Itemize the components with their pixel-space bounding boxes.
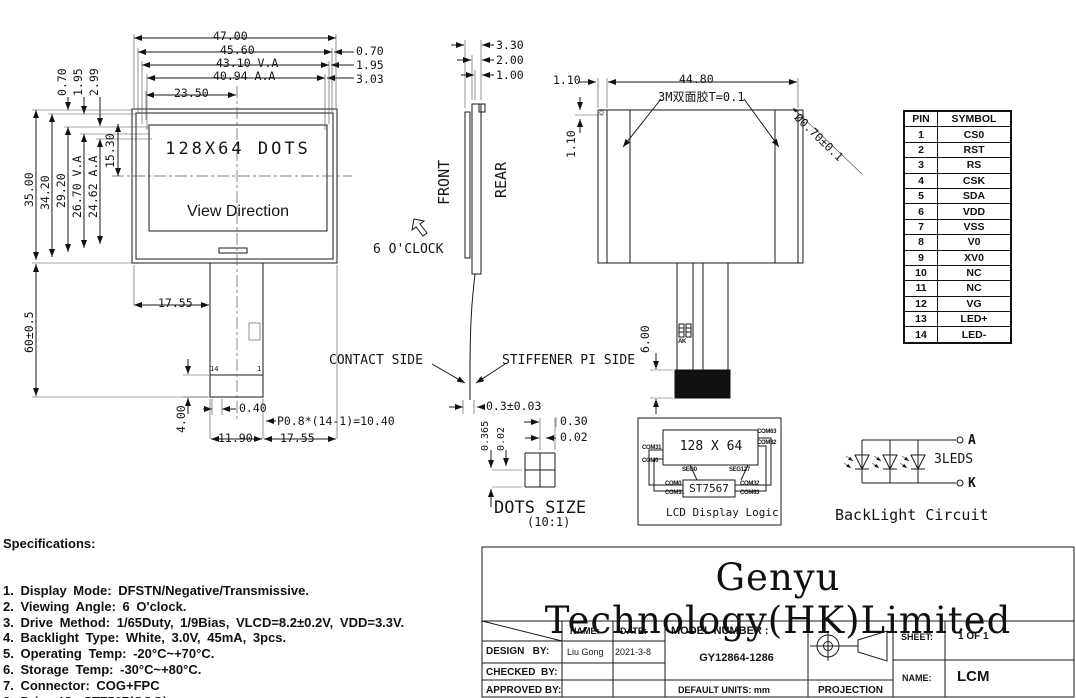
pin-table-row: 9XV0 bbox=[904, 250, 1011, 265]
dim-center-offset: 23.50 bbox=[174, 88, 209, 100]
dim-topleft-3: 2.99 bbox=[89, 68, 101, 96]
pin-table-row: 4CSK bbox=[904, 173, 1011, 188]
dim-topleft-1: 0.70 bbox=[57, 68, 69, 96]
logic-com-tl: COM31 bbox=[642, 445, 661, 451]
pin-table-row: 10NC bbox=[904, 265, 1011, 280]
logic-seg-left: SEG0 bbox=[682, 467, 697, 473]
logic-chip-l2: COM31 bbox=[665, 490, 684, 496]
tb-sheet-label: SHEET: bbox=[901, 632, 933, 642]
spec-item: 8. Drive IC: ST7567(COG) bbox=[3, 694, 404, 698]
led-icon bbox=[900, 455, 925, 469]
pin-symbol-cell: XV0 bbox=[938, 250, 1012, 265]
pin-symbol-cell: VDD bbox=[938, 204, 1012, 219]
dim-total-height: 60±0.5 bbox=[24, 311, 36, 353]
logic-chip-r1: COM32 bbox=[740, 481, 759, 487]
pin-symbol-cell: NC bbox=[938, 281, 1012, 296]
pin-number-cell: 12 bbox=[904, 296, 938, 311]
tb-design-label: DESIGN BY: bbox=[486, 646, 549, 657]
symbol-col-header: SYMBOL bbox=[938, 111, 1012, 127]
pin-symbol-cell: CSK bbox=[938, 173, 1012, 188]
specifications-title: Specifications: bbox=[3, 536, 404, 552]
backlight-anode-label: A bbox=[968, 434, 976, 447]
tb-projection-label: PROJECTION bbox=[818, 685, 883, 696]
dim-fpc-thickness: 0.3±0.03 bbox=[486, 401, 541, 413]
viewing-angle-label: 6 O'CLOCK bbox=[373, 243, 443, 256]
pin-table-row: 6VDD bbox=[904, 204, 1011, 219]
pin-number-cell: 8 bbox=[904, 235, 938, 250]
tb-date-label: DATE: bbox=[620, 626, 647, 636]
tb-design-date: 2021-3-8 bbox=[615, 647, 651, 657]
tape-note: 3M双面胶T=0.1 bbox=[658, 91, 745, 103]
dim-right-2: 1.95 bbox=[356, 60, 384, 72]
spec-item: 7. Connector: COG+FPC bbox=[3, 678, 404, 694]
tb-name-label: NAME: bbox=[570, 626, 600, 636]
pin-number-cell: 4 bbox=[904, 173, 938, 188]
logic-chip-text: ST7567 bbox=[684, 483, 734, 494]
dim-width-frame: 45.60 bbox=[220, 45, 255, 57]
pin-symbol-cell: CS0 bbox=[938, 127, 1012, 142]
tb-model-number: GY12864-1286 bbox=[665, 652, 808, 664]
dim-height-center: 15.30 bbox=[105, 133, 117, 168]
dim-height-va: 26.70 V.A bbox=[72, 156, 84, 218]
tb-model-label: MODEL NUMBER : bbox=[671, 625, 769, 637]
pin-table-row: 8V0 bbox=[904, 235, 1011, 250]
pin-table-row: 11NC bbox=[904, 281, 1011, 296]
dim-right-1: 0.70 bbox=[356, 46, 384, 58]
tb-name2-label: NAME: bbox=[902, 673, 932, 683]
pin-table-row: 14LED- bbox=[904, 327, 1011, 343]
six-oclock-arrow-icon bbox=[412, 219, 427, 236]
dim-topleft-2: 1.95 bbox=[73, 68, 85, 96]
spec-item: 2. Viewing Angle: 6 O'clock. bbox=[3, 599, 404, 615]
pin-table-body: 1CS02RST3RS4CSK5SDA6VDD7VSS8V09XV010NC11… bbox=[904, 127, 1011, 343]
dim-rear-gap-v: 1.10 bbox=[566, 130, 578, 158]
pin-symbol-cell: VG bbox=[938, 296, 1012, 311]
dim-connector-height: 4.00 bbox=[176, 405, 188, 433]
logic-com-tr: COM63 bbox=[757, 429, 776, 435]
pin-col-header: PIN bbox=[904, 111, 938, 127]
dim-side-1: 3.30 bbox=[496, 40, 524, 52]
backlight-caption: BackLight Circuit bbox=[835, 508, 989, 523]
pin-1-mark: 1 bbox=[257, 366, 261, 373]
side-view-linework bbox=[412, 40, 505, 414]
display-dots-text: 128X64 DOTS bbox=[163, 141, 313, 158]
pin-number-cell: 2 bbox=[904, 142, 938, 157]
dim-pitch: P0.8*(14-1)=10.40 bbox=[277, 416, 395, 428]
spec-list: 1. Display Mode: DFSTN/Negative/Transmis… bbox=[3, 583, 404, 698]
dim-connector-width: 11.90 bbox=[218, 433, 253, 445]
logic-com-br: COM32 bbox=[757, 440, 776, 446]
led-icon bbox=[872, 455, 897, 469]
pin-symbol-cell: NC bbox=[938, 265, 1012, 280]
logic-seg-right: SEG127 bbox=[729, 467, 750, 473]
logic-com-bl: COM0 bbox=[642, 458, 658, 464]
pin-number-cell: 9 bbox=[904, 250, 938, 265]
pin-table-row: 13LED+ bbox=[904, 312, 1011, 327]
tb-checked-label: CHECKED BY: bbox=[486, 667, 557, 678]
dim-width-aa: 40.94 A.A bbox=[213, 71, 275, 83]
spec-item: 4. Backlight Type: White, 3.0V, 45mA, 3p… bbox=[3, 630, 404, 646]
led-icon bbox=[844, 455, 869, 469]
pin-symbol-cell: V0 bbox=[938, 235, 1012, 250]
dim-width-outer: 47.00 bbox=[213, 31, 248, 43]
pin-symbol-cell: LED- bbox=[938, 327, 1012, 343]
contact-side-label: CONTACT SIDE bbox=[329, 354, 423, 367]
dim-height-3: 29.20 bbox=[56, 173, 68, 208]
pin-number-cell: 6 bbox=[904, 204, 938, 219]
dim-pin-width: 0.40 bbox=[239, 403, 267, 415]
logic-caption: LCD Display Logic bbox=[666, 507, 779, 518]
pin-symbol-cell: RST bbox=[938, 142, 1012, 157]
label-rear: REAR bbox=[494, 162, 509, 198]
pin-table-row: 2RST bbox=[904, 142, 1011, 157]
logic-chip-l1: COM0 bbox=[665, 481, 681, 487]
pin-number-cell: 1 bbox=[904, 127, 938, 142]
dim-side-3: 1.00 bbox=[496, 70, 524, 82]
dim-rear-gap-h: 1.10 bbox=[553, 75, 581, 87]
stiffener-side-label: STIFFENER PI SIDE bbox=[502, 354, 635, 367]
tb-units-label: DEFAULT UNITS: mm bbox=[678, 685, 770, 695]
lcd-module-datasheet-drawing: 47.00 45.60 43.10 V.A 40.94 A.A 23.50 0.… bbox=[0, 0, 1076, 698]
pin-number-cell: 3 bbox=[904, 158, 938, 173]
pin-number-cell: 5 bbox=[904, 188, 938, 203]
dim-height-frame: 34.20 bbox=[40, 175, 52, 210]
pin-table-header-row: PIN SYMBOL bbox=[904, 111, 1011, 127]
pin-number-cell: 7 bbox=[904, 219, 938, 234]
pin-number-cell: 11 bbox=[904, 281, 938, 296]
pin-table: PIN SYMBOL 1CS02RST3RS4CSK5SDA6VDD7VSS8V… bbox=[903, 110, 1012, 344]
dim-dot-width: 0.30 bbox=[560, 416, 588, 428]
dim-height-outer: 35.00 bbox=[24, 172, 36, 207]
pin-symbol-cell: SDA bbox=[938, 188, 1012, 203]
dim-tail-offset: 17.55 bbox=[158, 298, 193, 310]
dim-tail-right: 17.55 bbox=[280, 433, 315, 445]
pin-symbol-cell: VSS bbox=[938, 219, 1012, 234]
backlight-cathode-label: K bbox=[968, 477, 976, 490]
pin-number-cell: 10 bbox=[904, 265, 938, 280]
label-front: FRONT bbox=[437, 160, 452, 205]
pin-number-cell: 13 bbox=[904, 312, 938, 327]
pin-symbol-cell: LED+ bbox=[938, 312, 1012, 327]
tb-design-name: Liu Gong bbox=[567, 647, 604, 657]
ak-pad-label: AK bbox=[678, 339, 686, 345]
pin-symbol-cell: RS bbox=[938, 158, 1012, 173]
dim-dot-gap-h: 0.02 bbox=[497, 427, 507, 451]
tb-name-value: LCM bbox=[957, 668, 990, 685]
dim-tape-width: 44.80 bbox=[679, 74, 714, 86]
backlight-leds-label: 3LEDS bbox=[934, 453, 973, 466]
pin-14-mark: 14 bbox=[210, 366, 218, 373]
dim-dot-height: 0.365 bbox=[481, 421, 491, 451]
pin-number-cell: 14 bbox=[904, 327, 938, 343]
view-direction-text: View Direction bbox=[167, 204, 309, 220]
logic-display-text: 128 X 64 bbox=[665, 440, 757, 453]
spec-item: 3. Drive Method: 1/65Duty, 1/9Bias, VLCD… bbox=[3, 615, 404, 631]
spec-item: 6. Storage Temp: -30°C~+80°C. bbox=[3, 662, 404, 678]
spec-item: 5. Operating Temp: -20°C~+70°C. bbox=[3, 646, 404, 662]
specifications-block: Specifications: 1. Display Mode: DFSTN/N… bbox=[3, 504, 404, 698]
pin-table-row: 3RS bbox=[904, 158, 1011, 173]
tb-sheet-value: 1 OF 1 bbox=[958, 631, 989, 642]
dim-right-3: 3.03 bbox=[356, 74, 384, 86]
logic-chip-r2: COM63 bbox=[740, 490, 759, 496]
spec-item: 1. Display Mode: DFSTN/Negative/Transmis… bbox=[3, 583, 404, 599]
pin-table-row: 1CS0 bbox=[904, 127, 1011, 142]
pin-table-row: 5SDA bbox=[904, 188, 1011, 203]
dim-width-va: 43.10 V.A bbox=[216, 58, 278, 70]
dim-height-aa: 24.62 A.A bbox=[88, 156, 100, 218]
dots-size-scale: (10:1) bbox=[527, 516, 570, 528]
dim-stiffener-height: 6.00 bbox=[640, 325, 652, 353]
pin-table-row: 7VSS bbox=[904, 219, 1011, 234]
tb-approved-label: APPROVED BY: bbox=[486, 685, 561, 696]
dim-dot-gap-w: 0.02 bbox=[560, 432, 588, 444]
pin-table-row: 12VG bbox=[904, 296, 1011, 311]
dim-side-2: 2.00 bbox=[496, 55, 524, 67]
